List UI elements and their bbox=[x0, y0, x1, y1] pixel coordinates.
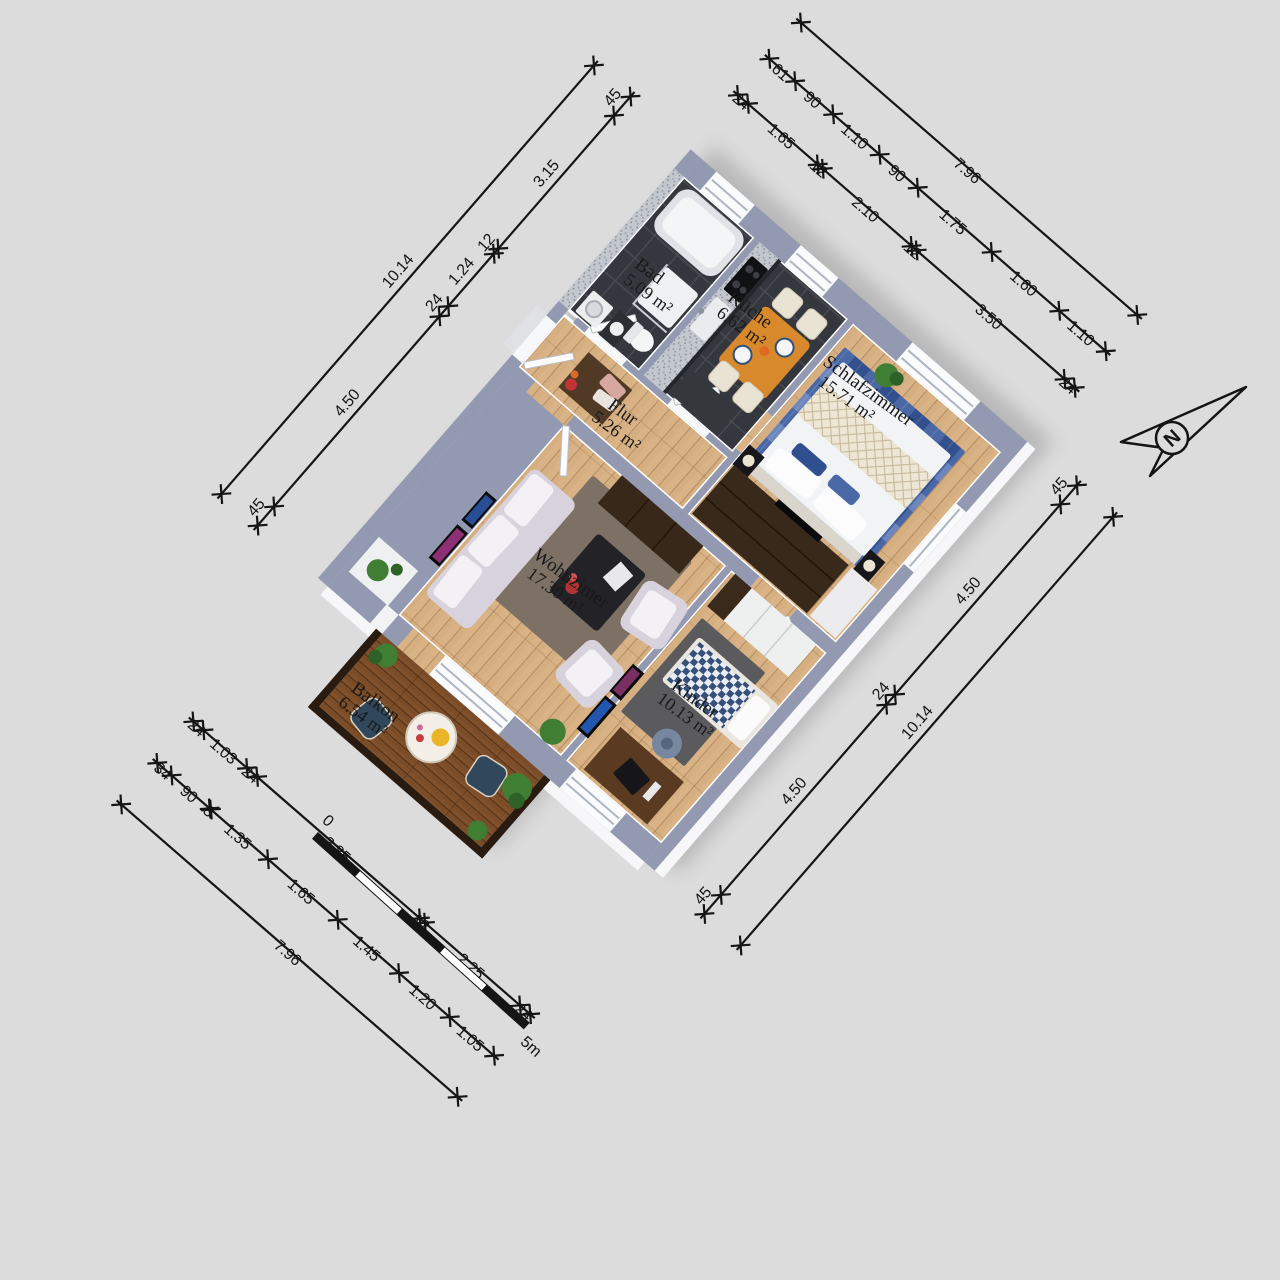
dim-line-sw_outer: 7.96 bbox=[108, 795, 467, 1111]
dim-label: 7.96 bbox=[950, 155, 984, 188]
scale-start-label: 0 bbox=[319, 812, 337, 831]
dim-label: 1.65 bbox=[764, 121, 798, 154]
floorplan-canvas: Bad5.09 m² Küche6.62 m² Schlafzimmer15.7… bbox=[0, 0, 1280, 1280]
dim-label: 1.05 bbox=[453, 1023, 487, 1056]
dim-label: 2.10 bbox=[848, 194, 882, 227]
dim-label: 1.60 bbox=[1006, 268, 1040, 301]
scale-end-label: 5m bbox=[517, 1033, 545, 1061]
north-arrow: N bbox=[1121, 387, 1246, 476]
dim-label: 3.15 bbox=[530, 157, 563, 191]
dim-label: 90 bbox=[176, 783, 200, 807]
dim-label: 4.50 bbox=[778, 774, 811, 808]
dim-label: 1.10 bbox=[1063, 317, 1097, 350]
dim-label: 12 bbox=[900, 239, 924, 263]
dim-label: 4.50 bbox=[331, 386, 364, 420]
dim-label: 90 bbox=[800, 88, 824, 112]
dim-label: 1.03 bbox=[206, 736, 240, 769]
dim-label: 1.75 bbox=[936, 206, 970, 239]
dim-label: 1.45 bbox=[349, 933, 383, 966]
dim-label: 12 bbox=[806, 157, 830, 181]
dim-label: 1.20 bbox=[405, 981, 439, 1014]
dim-label: 1.24 bbox=[445, 255, 478, 289]
dim-label: 3.50 bbox=[971, 301, 1005, 334]
dim-label: 1.65 bbox=[284, 876, 318, 909]
dim-label: 10.14 bbox=[379, 251, 417, 292]
floor-plan: Bad5.09 m² Küche6.62 m² Schlafzimmer15.7… bbox=[1, 0, 1234, 1185]
dim-label: 90 bbox=[884, 162, 908, 186]
dim-label: 1.35 bbox=[220, 821, 254, 854]
dim-label: 7.96 bbox=[270, 937, 304, 970]
dim-label: 10.14 bbox=[898, 702, 936, 743]
dim-label: 1.10 bbox=[837, 121, 871, 154]
dim-label: 4.50 bbox=[952, 574, 985, 608]
